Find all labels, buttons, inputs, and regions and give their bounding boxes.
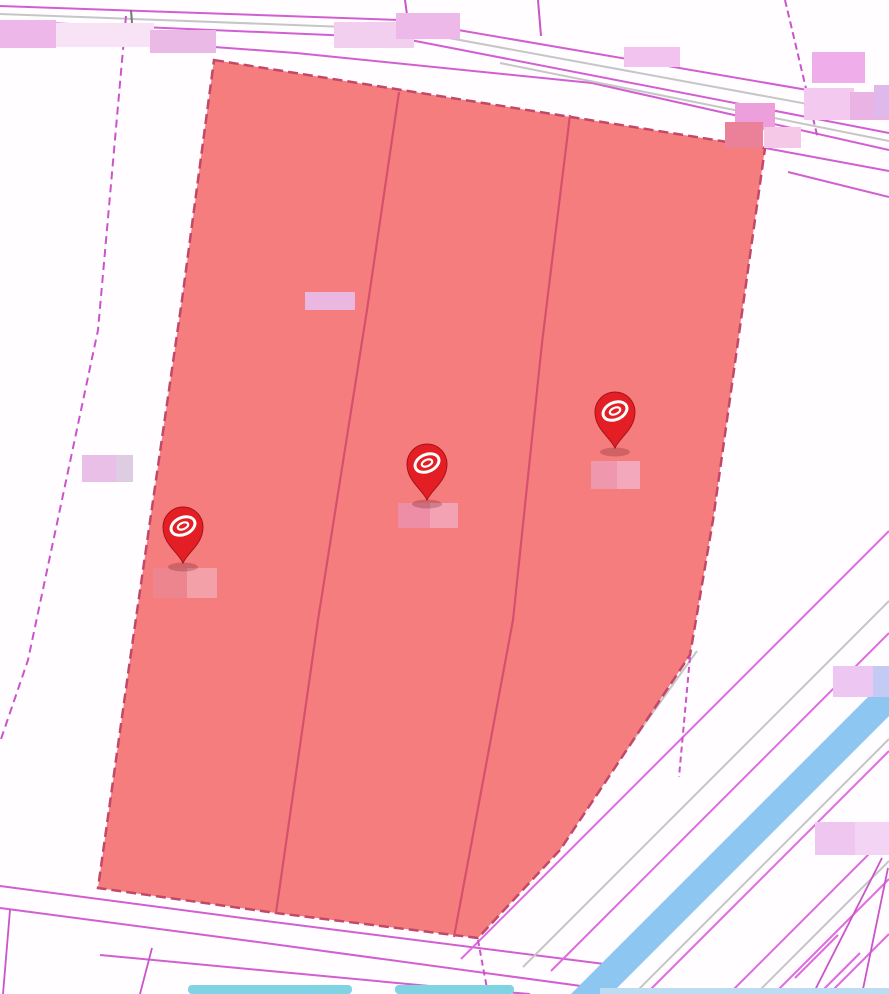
southwest-parcel-boundary-2: [140, 948, 152, 994]
redacted-label: [812, 52, 865, 83]
redacted-label: [305, 292, 355, 310]
redacted-label: [764, 127, 801, 148]
redacted-label: [833, 666, 873, 697]
redacted-label: [873, 666, 889, 697]
north-parcel-boundary-b: [538, 0, 541, 36]
redacted-label: [855, 822, 889, 855]
west-parcel-boundary-dashed: [0, 16, 126, 742]
redacted-label: [725, 122, 763, 148]
redacted-label: [150, 30, 216, 53]
map-canvas[interactable]: [0, 0, 889, 994]
redacted-label: [82, 455, 116, 482]
layer-water: [188, 985, 889, 994]
redacted-pin-label-3: [617, 461, 640, 489]
road-line-magenta-5: [788, 172, 889, 197]
se-road-line-5: [774, 879, 889, 994]
southwest-parcel-boundary-1: [3, 910, 10, 994]
canal-strip-pale: [600, 988, 889, 994]
se-parcel-boundary-v2: [862, 868, 888, 994]
se-road-casing-3: [634, 739, 889, 994]
south-path-line-lower: [0, 908, 640, 994]
map-viewport[interactable]: [0, 0, 889, 994]
redacted-label: [874, 85, 889, 117]
redacted-label: [56, 23, 154, 47]
redacted-label: [815, 822, 855, 855]
se-parcel-chevron-2: [822, 953, 860, 991]
redacted-label: [116, 455, 133, 482]
redacted-label: [0, 20, 56, 48]
se-road-line-3: [646, 751, 889, 994]
redacted-label: [804, 88, 854, 120]
redacted-pin-label-1: [153, 568, 187, 598]
se-road-line-4: [729, 834, 889, 994]
canal-bar-1: [188, 985, 352, 994]
redacted-label: [396, 13, 460, 39]
highlighted-parcel-block[interactable]: [98, 60, 765, 938]
canal-bar-2: [395, 985, 514, 994]
road-line-magenta-4: [765, 148, 889, 171]
redacted-pin-label-1: [187, 568, 217, 598]
survey-tick: [131, 10, 132, 23]
redacted-pin-label-3: [591, 461, 617, 489]
redacted-label: [624, 47, 680, 67]
